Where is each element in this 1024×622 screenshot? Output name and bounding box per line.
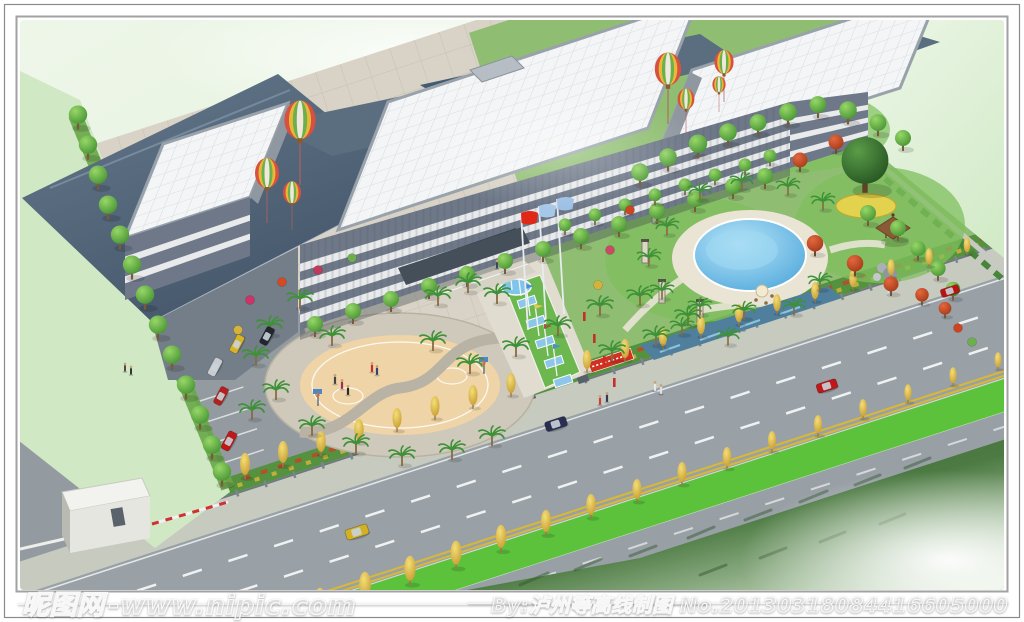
rendering-page: 昵图网-www.nipic.com By:泸州等高线制图 No.20130318… (0, 0, 1024, 622)
pool-chair (754, 298, 758, 302)
bush-sprite (626, 206, 635, 215)
bush-sprite (234, 326, 243, 335)
sun-haze (420, 90, 700, 210)
pool-highlight (706, 230, 778, 270)
parasol (756, 285, 768, 297)
watermark-credit-text: By:泸州等高线制图 No.20130318084416605000 (491, 593, 1008, 617)
china-flag (521, 211, 538, 225)
rendering-content (0, 0, 1024, 622)
watermark-site-text: 昵图网-www.nipic.com (22, 590, 356, 621)
bush-sprite (968, 338, 977, 347)
bush-sprite (594, 281, 603, 290)
pool-chair (770, 294, 774, 298)
bush-sprite (954, 324, 963, 333)
pool-chair (764, 301, 768, 305)
rendering-canvas: 昵图网-www.nipic.com By:泸州等高线制图 No.20130318… (0, 0, 1024, 622)
bush-sprite (278, 278, 287, 287)
bush-sprite (606, 246, 615, 255)
watermark-right: By:泸州等高线制图 No.20130318084416605000 (468, 593, 1008, 617)
bush-sprite (246, 296, 255, 305)
bush-sprite (314, 266, 323, 275)
bush-sprite (348, 254, 357, 263)
